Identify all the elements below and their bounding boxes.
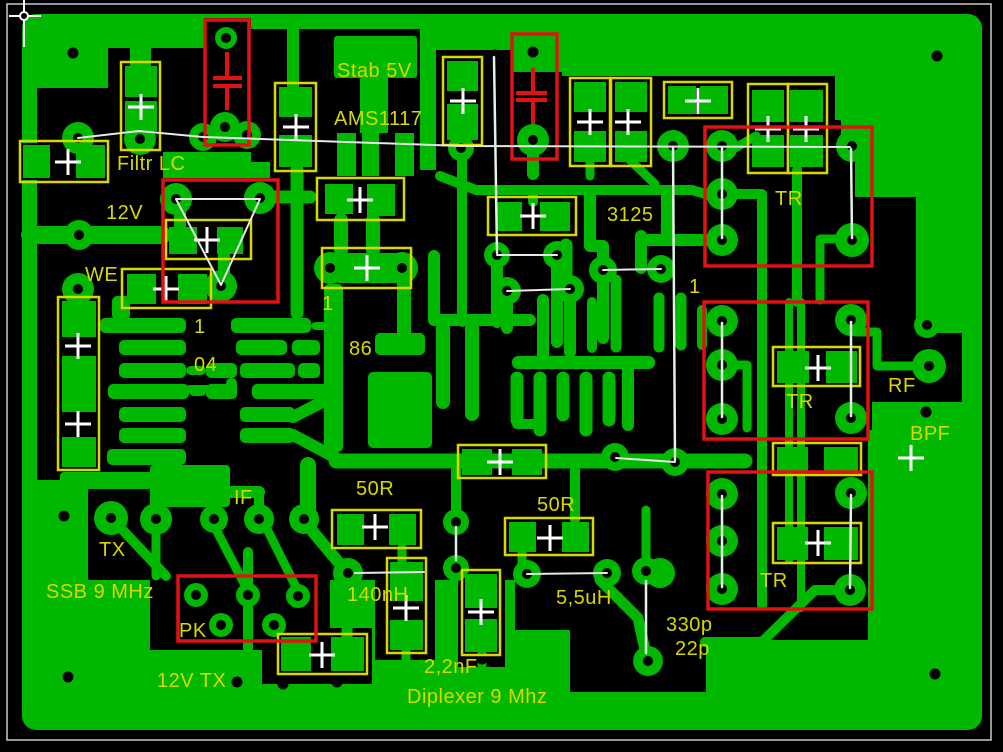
svg-text:AMS1117: AMS1117 — [334, 108, 422, 130]
svg-text:Filtr LC: Filtr LC — [117, 153, 185, 175]
svg-text:04: 04 — [194, 354, 217, 376]
svg-text:5,5uH: 5,5uH — [556, 587, 612, 609]
svg-text:12V TX: 12V TX — [157, 670, 226, 692]
svg-text:140nH: 140nH — [347, 584, 408, 606]
svg-text:1: 1 — [322, 293, 334, 315]
svg-text:Stab 5V: Stab 5V — [337, 60, 412, 82]
svg-text:22p: 22p — [675, 638, 710, 660]
svg-text:PK: PK — [179, 620, 207, 642]
svg-text:TR: TR — [775, 188, 803, 210]
svg-text:12V: 12V — [106, 202, 143, 224]
svg-text:1: 1 — [194, 316, 206, 338]
svg-text:TR: TR — [786, 391, 814, 413]
svg-text:BPF: BPF — [910, 423, 950, 445]
svg-text:TX: TX — [99, 539, 126, 561]
svg-text:IF: IF — [234, 487, 253, 509]
svg-text:50R: 50R — [537, 494, 575, 516]
svg-text:TR: TR — [760, 570, 788, 592]
svg-text:330p: 330p — [666, 614, 713, 636]
svg-text:2,2nF: 2,2nF — [424, 656, 478, 678]
svg-text:SSB 9 MHz: SSB 9 MHz — [46, 581, 154, 603]
svg-text:3125: 3125 — [607, 204, 654, 226]
svg-text:50R: 50R — [356, 478, 394, 500]
svg-text:WE: WE — [85, 264, 118, 286]
svg-text:RF: RF — [888, 375, 916, 397]
svg-text:1: 1 — [689, 276, 701, 298]
svg-text:86: 86 — [349, 338, 372, 360]
svg-text:Diplexer 9 Mhz: Diplexer 9 Mhz — [407, 686, 547, 708]
